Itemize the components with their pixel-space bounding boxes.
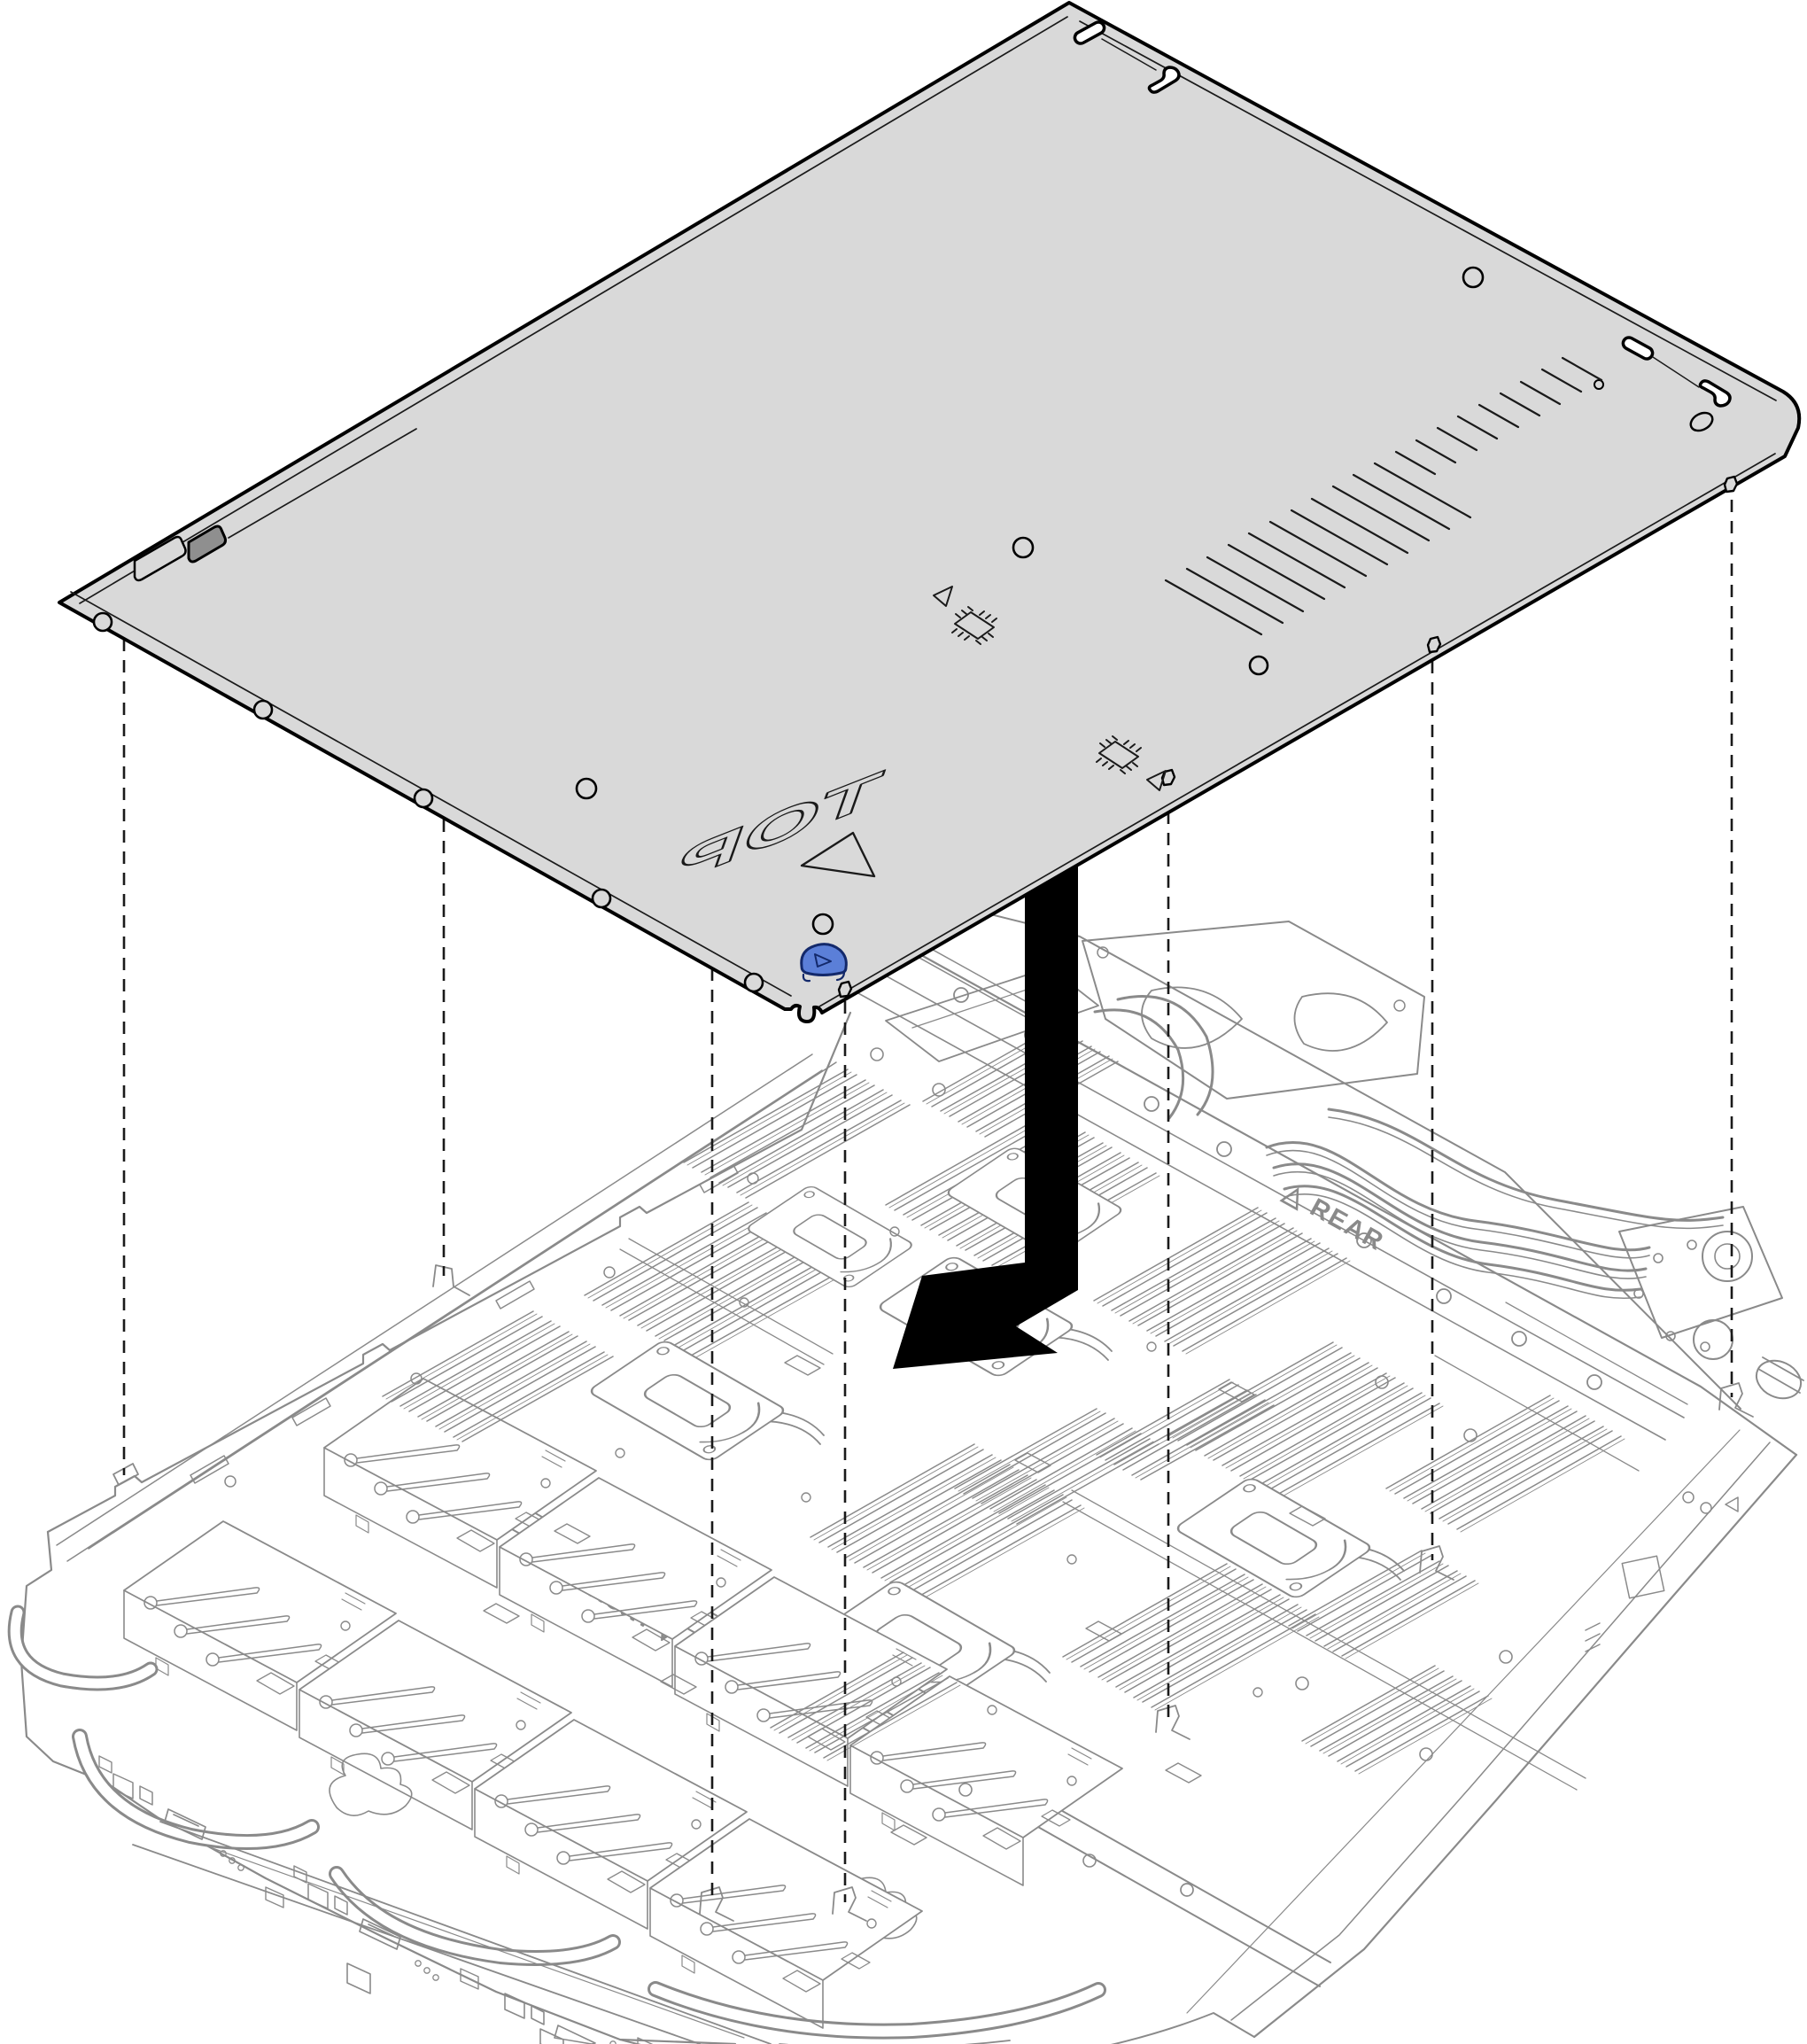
svg-text:△ REAR: △ REAR <box>1278 1178 1389 1257</box>
